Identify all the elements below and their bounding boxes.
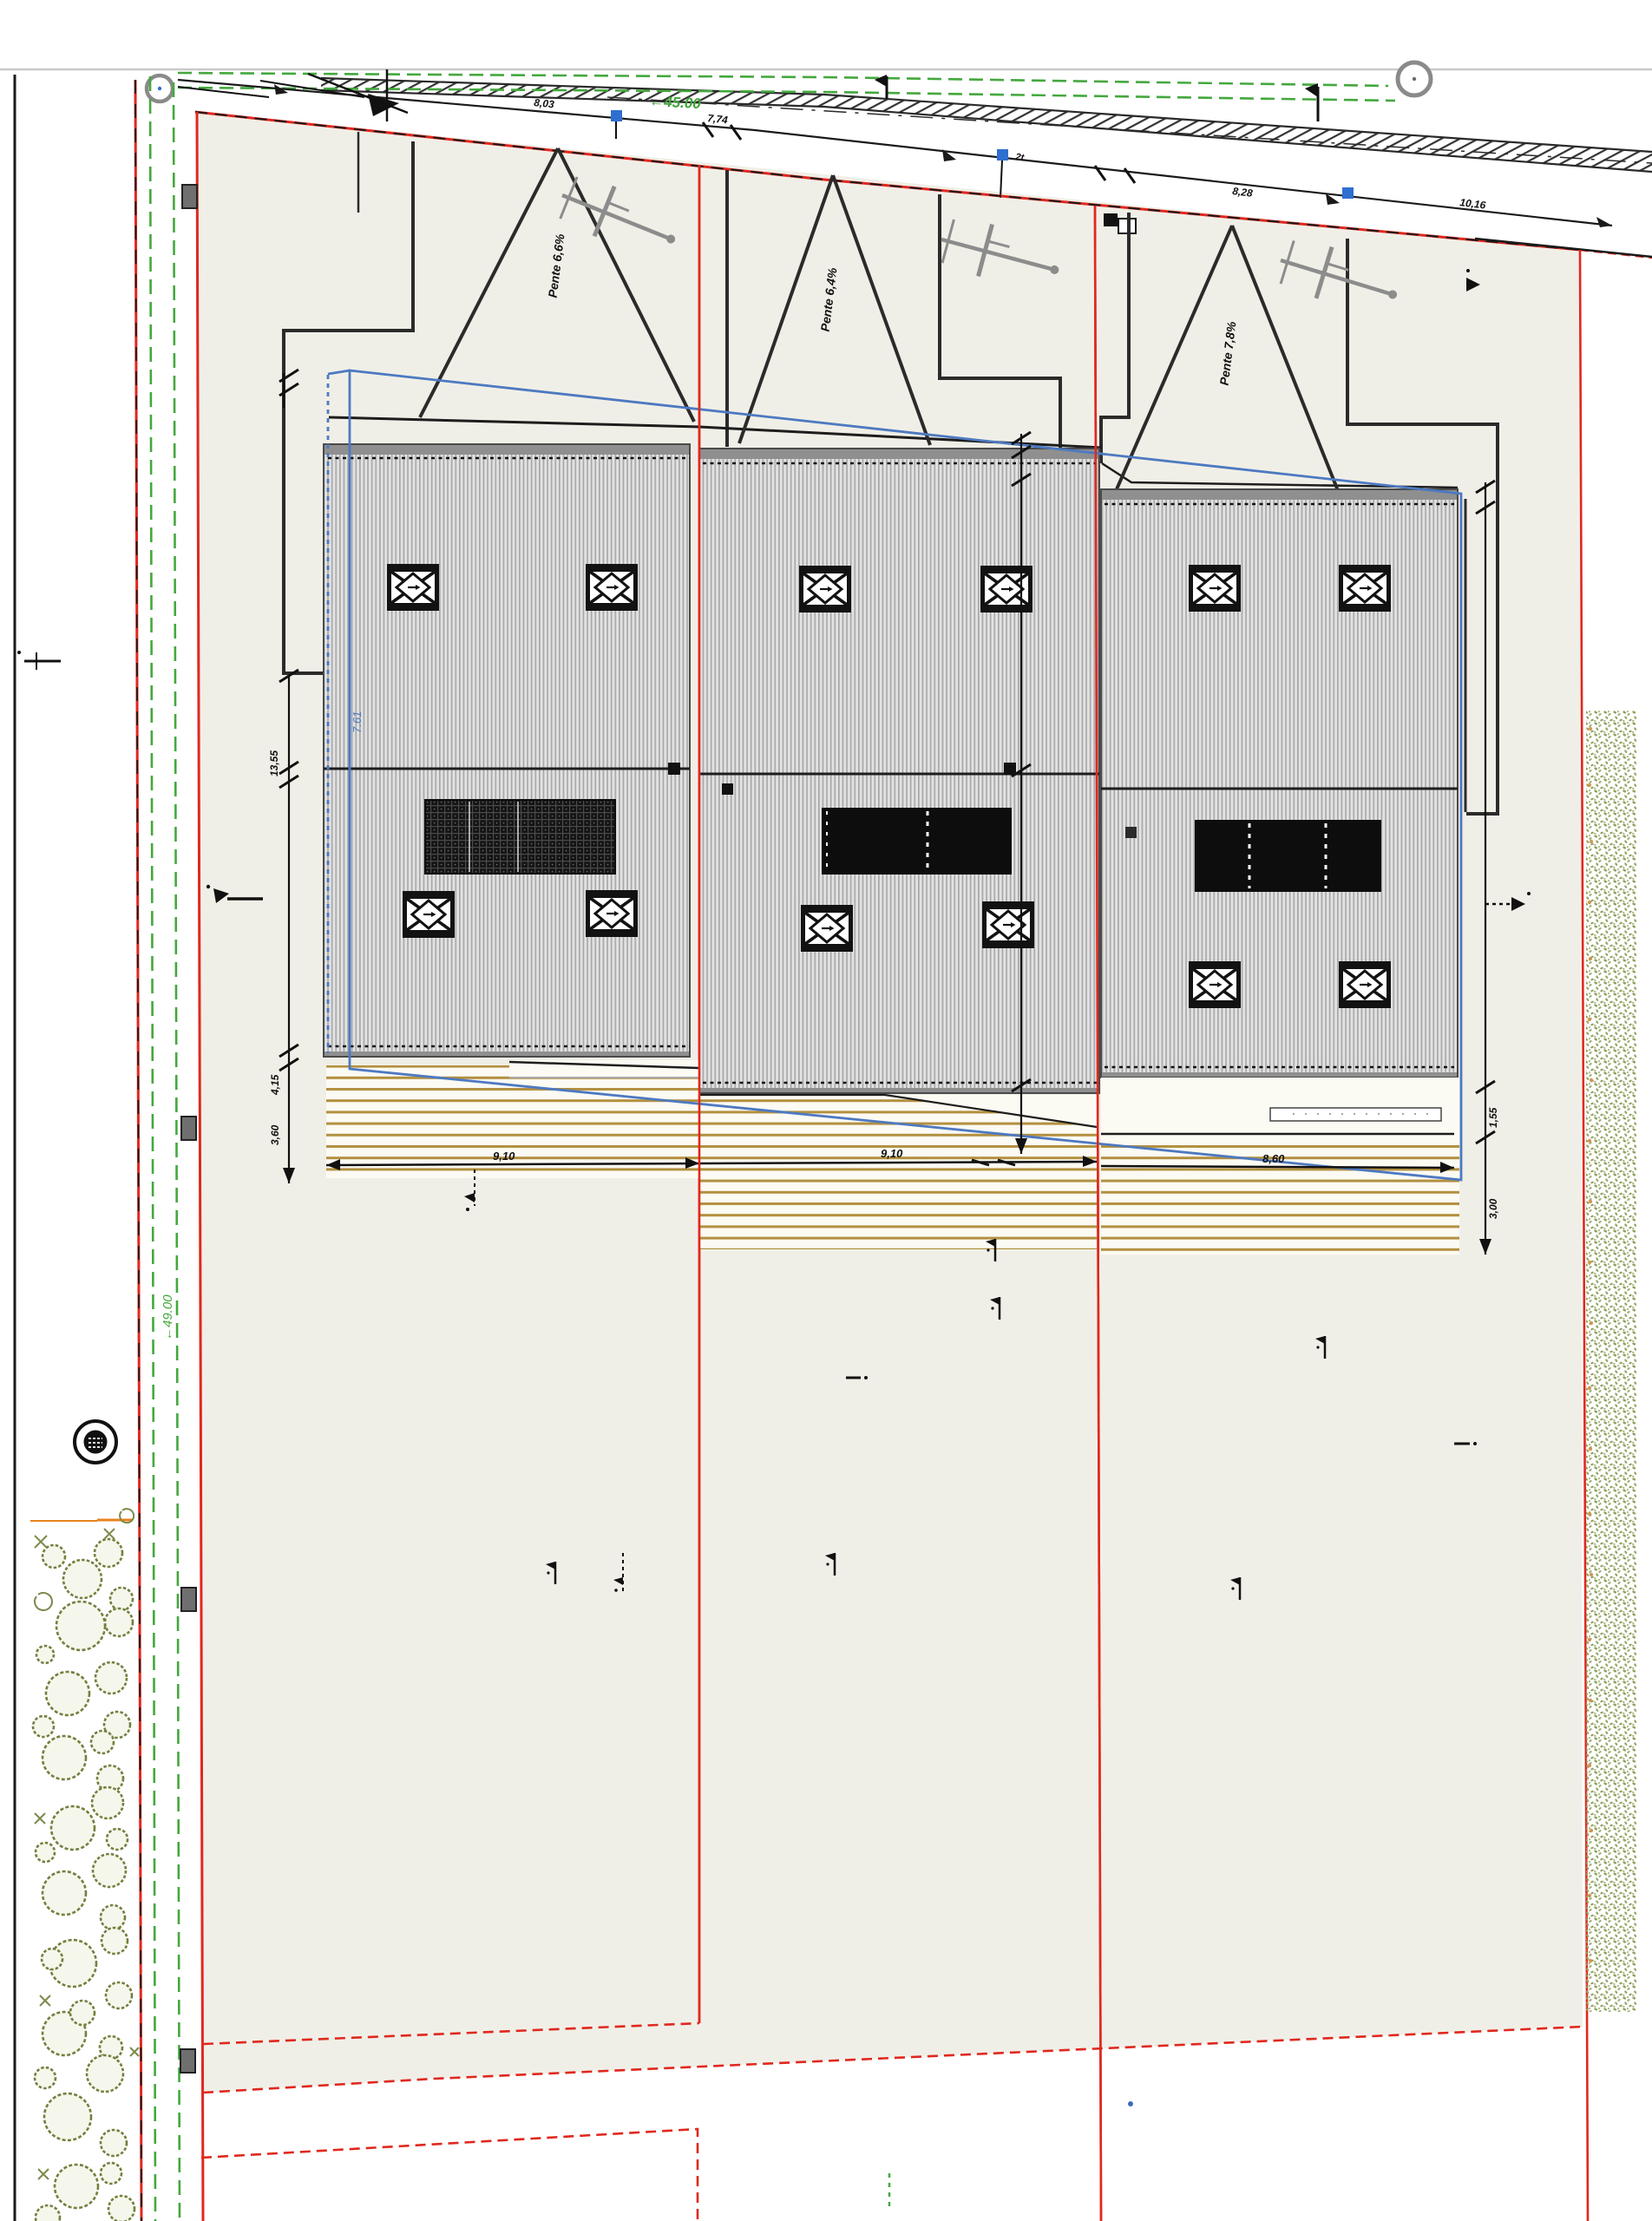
svg-text:4,15: 4,15: [269, 1074, 281, 1096]
svg-text:3,60: 3,60: [269, 1124, 281, 1145]
svg-text:8,28: 8,28: [1232, 185, 1254, 200]
svg-text:7,74: 7,74: [707, 112, 729, 126]
svg-text:←49.00: ←49.00: [161, 1294, 175, 1340]
svg-text:3,00: 3,00: [1487, 1198, 1499, 1219]
svg-text:8,03: 8,03: [534, 96, 555, 110]
svg-text:7.61: 7.61: [351, 711, 364, 733]
svg-text:←45.00: ←45.00: [649, 93, 702, 112]
svg-text:13,55: 13,55: [268, 750, 280, 776]
svg-text:9,10: 9,10: [881, 1147, 903, 1160]
svg-text:1,55: 1,55: [1487, 1107, 1499, 1128]
svg-text:8,60: 8,60: [1262, 1152, 1285, 1165]
svg-text:9,10: 9,10: [493, 1150, 515, 1163]
